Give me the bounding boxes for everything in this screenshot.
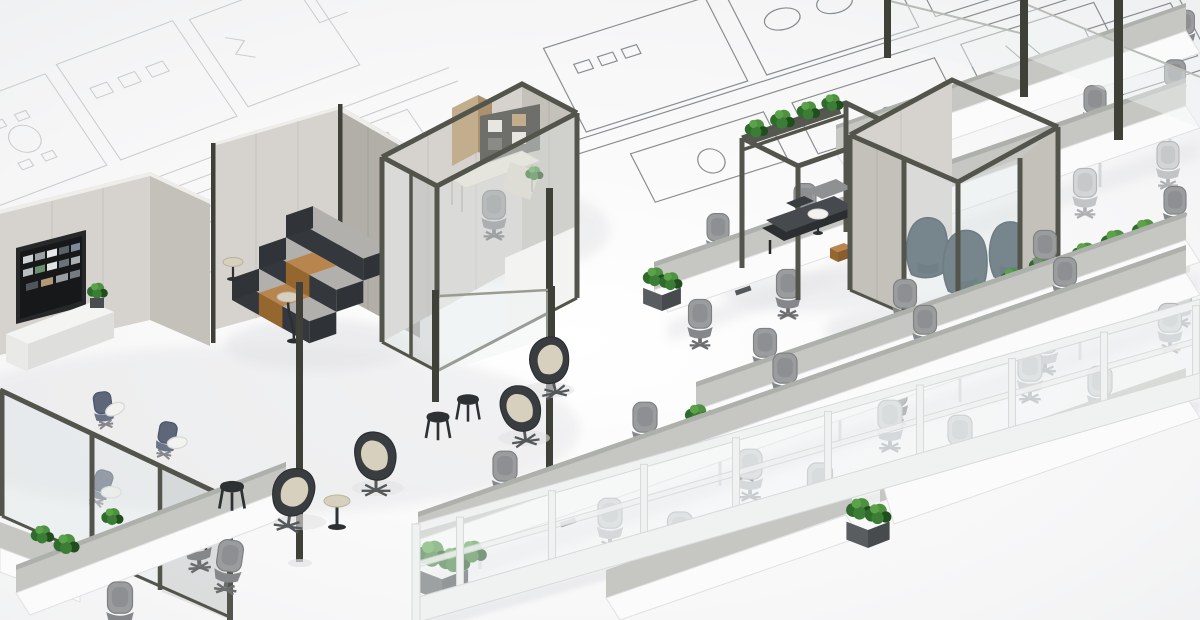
- screen-post: [1114, 0, 1123, 140]
- screen-post: [884, 0, 891, 58]
- screen-post: [1020, 0, 1028, 97]
- wall-corner-post: [211, 143, 216, 343]
- office-3d-render: 3D isometric rendering of a modern open-…: [0, 0, 1200, 620]
- office-render-stage: Rendered office concept: enclosed meetin…: [0, 0, 1200, 620]
- partition-end-post: [412, 524, 420, 620]
